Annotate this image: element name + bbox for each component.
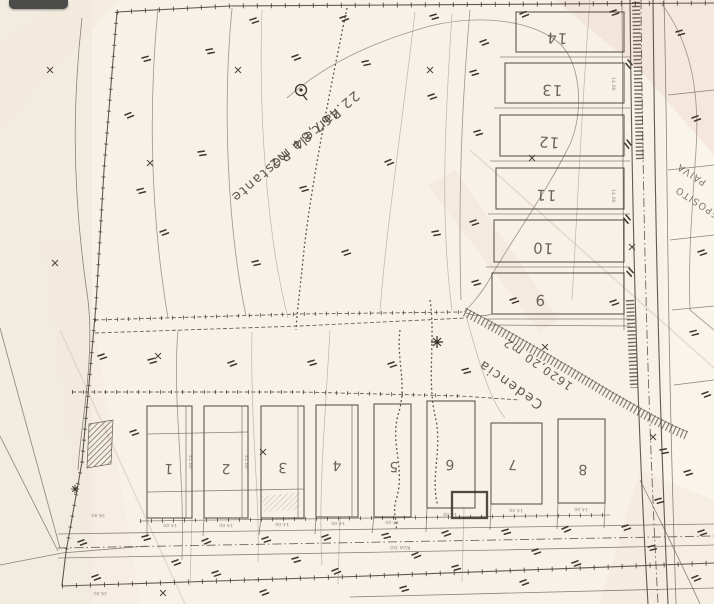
- lot-number: 10: [532, 238, 554, 257]
- lot-number: 5: [389, 458, 399, 474]
- road-hatch-mid: [630, 300, 634, 388]
- dim-label: 14.00: [331, 520, 345, 526]
- lot-number: 6: [445, 456, 455, 472]
- lot-number: 4: [332, 457, 342, 473]
- road-hatch-upper: [636, 2, 640, 160]
- dim-label: 14.00: [443, 511, 457, 517]
- survey-map-drawing: 14 13 12 11 10 9 14.00 14.00 1 2 3 4: [0, 0, 714, 604]
- dim-label: 14.00: [385, 519, 399, 525]
- dim-label: 14.00: [610, 77, 616, 91]
- lot-number: 3: [278, 459, 288, 476]
- dim-label: 14.00: [275, 521, 289, 527]
- lot-rect: [500, 115, 624, 156]
- hatched-parallelogram: [87, 420, 113, 468]
- paper-tint-washes: [0, 0, 714, 604]
- lot-number: 12: [538, 132, 560, 151]
- dim-label: 14.00: [509, 507, 523, 513]
- lot-number: 11: [535, 186, 557, 205]
- dark-tab-remnant[interactable]: [9, 0, 68, 9]
- dim-label: 41.00: [187, 455, 193, 469]
- lot-number: 13: [541, 81, 563, 100]
- grass-symbol-scatter: [78, 9, 711, 596]
- dim-label: 14.00: [574, 506, 588, 512]
- scanned-survey-plan: 14 13 12 11 10 9 14.00 14.00 1 2 3 4: [0, 0, 714, 604]
- lot-number: 1: [164, 460, 174, 476]
- dim-label: 26.92: [93, 590, 107, 596]
- road-name-label: RUA DO: [390, 544, 411, 550]
- lot-number: 8: [578, 461, 587, 477]
- lot-number: 9: [534, 291, 545, 309]
- dim-label: 41.00: [243, 455, 249, 469]
- dim-label: 14.00: [219, 522, 233, 528]
- dim-label: 14.00: [610, 189, 616, 203]
- dim-label: 14.00: [163, 522, 177, 528]
- lot-number: 7: [508, 456, 518, 472]
- dim-label: 26.92: [91, 512, 105, 518]
- lot-rect: [505, 63, 624, 103]
- parcela-area-label: 22.467,84 m2: [265, 87, 363, 172]
- lot-number: 14: [546, 28, 568, 47]
- lot-rect: [496, 168, 624, 209]
- tree-symbols: [71, 85, 443, 494]
- lot-number: 2: [221, 460, 230, 476]
- tree-circle-symbol: [296, 85, 308, 101]
- hatched-corner: [262, 492, 300, 512]
